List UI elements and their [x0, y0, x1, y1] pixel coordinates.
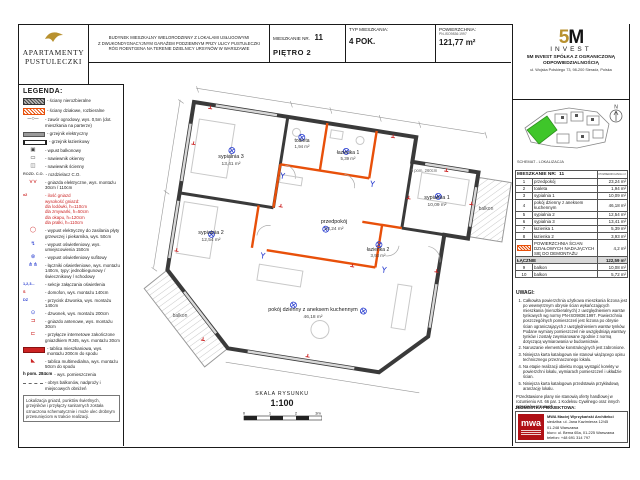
legend-item: ◣- tablica multimedialna, wys. montażu 5… — [23, 359, 120, 370]
type-value: 4 POK. — [349, 37, 432, 46]
table-row: 7łazienka 15,39 m² — [516, 225, 628, 232]
legend-item: DZ- przycisk dzwonka, wys. montażu 140cm — [23, 298, 120, 309]
room-area: 13,41 m² — [222, 161, 241, 167]
light-sections-icon: 1,2,3... — [23, 282, 43, 286]
table-row: 9balkon10,08 m² — [516, 264, 628, 271]
room-area: 10,09 m² — [428, 202, 447, 208]
legend-item: ▭- nawiewnik okienny — [23, 156, 120, 162]
window-vent-icon: ▭ — [23, 156, 43, 162]
legend-item: - ściany nierozbieralne — [23, 98, 120, 105]
legend-item: ◫- nawiewnik ścienny — [23, 164, 120, 170]
scale-bar: 0 1 2 3m — [242, 410, 322, 424]
developer-block: 5M INVEST 5M INVEST SPÓŁKA Z OGRANICZONĄ… — [513, 24, 629, 100]
type-label: TYP MIESZKANIA: — [349, 27, 432, 32]
map-caption: SCHEMAT - LOKALIZACJA — [517, 160, 625, 164]
room-area: 5,39 m² — [341, 156, 356, 161]
ethernet-socket-icon: ⊏ — [23, 332, 43, 338]
table-row: 4pokój dzienny z aneksem kuchennym46,18 … — [516, 199, 628, 211]
design-office-title: JEDNOSTKA PROJEKTOWA: — [515, 405, 628, 410]
partition-wall-icon — [23, 108, 45, 115]
mwa-logo: mwa — [518, 414, 544, 440]
demolition-row: POWIERZCHNIA ŚCIAN DZIAŁOWYCH NADAJĄCYCH… — [516, 240, 628, 257]
apartment-type-cell: TYP MIESZKANIA: 4 POK. — [346, 25, 436, 63]
room-schedule-table: MIESZKANIE NR: 11 POWIERZCHNIA m² 1przed… — [515, 170, 628, 278]
notes-block: UWAGI: Całkowita powierzchnia użytkowa m… — [516, 290, 627, 409]
height-note: h pom. 260cm — [411, 168, 438, 173]
design-office-block: JEDNOSTKA PROJEKTOWA: mwa MWA Maciej Wyr… — [515, 405, 628, 443]
apartment-geometry — [134, 83, 512, 410]
power-outlet-icon: ⋎⋎ — [23, 180, 43, 186]
floor-plan-drawing: sypialnia 3 13,41 m² toaleta 1,94 m² łaz… — [124, 62, 512, 446]
legend-panel: LEGENDA: - ściany nierozbieralne - ścian… — [19, 84, 124, 446]
table-header-row: MIESZKANIE NR: 11 POWIERZCHNIA m² — [516, 171, 628, 179]
legend-item: ⋔⋔- łączniki oświetleniowe, wys. montażu… — [23, 263, 120, 279]
legend-item: ⊏- przyłącze internetowe zakończone gnia… — [23, 332, 120, 343]
bathroom-heater-icon — [23, 140, 47, 145]
brand-name-line2: PUSTULECZKI — [19, 57, 88, 66]
room-label: sypialnia 3 — [218, 154, 243, 160]
legend-footnote: Lokalizacja gniazd, punktów świetlnych, … — [23, 395, 120, 422]
location-map: N — [517, 102, 625, 154]
table-row: 2toaleta1,94 m² — [516, 185, 628, 192]
outline-dash-icon — [23, 383, 43, 384]
table-row: 8łazienka 23,93 m² — [516, 233, 628, 240]
apartment-number-cell: MIESZKANIE NR. 11 PIĘTRO 2 — [270, 25, 346, 63]
legend-item: ROZD. C.O.- rozdzielacz C.O. — [23, 172, 120, 177]
description-line: RÓG ROENTGENA NA TERENIE DZIELNICY URSYN… — [89, 46, 269, 52]
notes-list: Całkowita powierzchnia użytkowa mieszkan… — [516, 298, 627, 391]
legend-item: - tablica mieszkaniowa, wys. montażu 200… — [23, 346, 120, 357]
note-item: Niniejsza karta katalogowa nie stanowi w… — [523, 352, 627, 362]
floor-plan-sheet: { "header": { "brand_line1": "APARTAMENT… — [0, 0, 640, 480]
ceiling-light-icon: ⊗ — [23, 255, 43, 261]
room-label: balkon — [173, 313, 188, 319]
doorbell-icon: ⊙ — [23, 311, 43, 317]
apartment-panel-icon — [23, 347, 45, 353]
legend-item: x2- ilość gniazd wysokość gniazd: dla lo… — [23, 193, 120, 225]
table-row: 3sypialnia 110,09 m² — [516, 192, 628, 199]
title-block-column: 5M INVEST 5M INVEST SPÓŁKA Z OGRANICZONĄ… — [512, 24, 629, 446]
floor-number: 2 — [307, 48, 312, 57]
room-label: przedpokój — [321, 219, 347, 225]
svg-text:3m: 3m — [315, 411, 321, 416]
antenna-socket-icon: ⊐ — [23, 319, 43, 325]
room-area: 46,18 m² — [304, 314, 323, 320]
total-row: ŁĄCZNIE 122,59 m² — [516, 257, 628, 264]
legend-item: 1,2,3...- sekcje załączania oświetlenia — [23, 282, 120, 287]
legend-item: h pom. 284cm- wys. pomieszczenia — [23, 372, 120, 377]
light-outlet-icon: ↯ — [23, 242, 43, 248]
room-area: 23,24 m² — [325, 226, 344, 232]
legend-item: ⋎⋎- gniazda elektryczne, wys. montażu 30… — [23, 180, 120, 191]
electric-heater-icon — [23, 132, 45, 137]
room-label: sypialnia 2 — [198, 230, 223, 236]
legend-item: - grzejnik łazienkowy — [23, 139, 120, 145]
table-row: 6sypialnia 313,41 m² — [516, 218, 628, 225]
solid-wall-icon — [23, 98, 45, 105]
design-office-details: MWA Maciej Wyrzykański Architekci siedzi… — [547, 414, 614, 440]
cooktop-outlet-icon: ◯ — [23, 228, 43, 234]
north-arrow-icon: N — [610, 105, 622, 123]
legend-title: LEGENDA: — [23, 88, 120, 95]
outlet-count-icon: x2 — [23, 193, 43, 197]
table-row: 1przedpokój23,24 m² — [516, 178, 628, 185]
svg-text:1: 1 — [269, 411, 272, 416]
note-item: Naruszanie elementów konstrukcyjnych jes… — [523, 345, 627, 350]
scale-value: 1:100 — [236, 398, 328, 408]
kestrel-bird-icon — [43, 29, 65, 43]
office-line: siedziba: ul. Jana Kazimierza 12/45 — [547, 419, 614, 424]
brand-logo-cell: APARTAMENTY PUSTULECZKI — [19, 25, 89, 85]
developer-logo-sub: INVEST — [513, 46, 629, 53]
legend-item: ▣- wpust balkonowy — [23, 148, 120, 154]
room-label: balkon — [479, 206, 494, 212]
legend-item: - grzejnik elektryczny — [23, 131, 120, 137]
apartment-number: 11 — [314, 33, 322, 42]
table-row: 5sypialnia 212,54 m² — [516, 211, 628, 218]
legend-item: ⊐- gniazdo antenowe, wys. montażu 30cm — [23, 319, 120, 330]
area-value: 121,77 m² — [439, 38, 508, 47]
developer-address: ul. Wojska Polskiego 73, 98-200 Sieradz,… — [513, 68, 629, 72]
floor-label: PIĘTRO — [273, 48, 304, 57]
legend-item: S- domofon, wys. montażu 140cm — [23, 290, 120, 295]
svg-text:0: 0 — [243, 411, 246, 416]
room-area: 1,94 m² — [295, 144, 310, 149]
table-row: 10balkon5,72 m² — [516, 271, 628, 278]
mwa-logo-bars — [521, 430, 541, 436]
apartment-label: MIESZKANIE NR. — [273, 36, 310, 41]
office-phone: telefon: +48 691 314 797 — [547, 435, 614, 440]
wall-vent-icon: ◫ — [23, 164, 43, 170]
demolition-hatch-icon — [517, 245, 531, 251]
multimedia-panel-icon: ◣ — [23, 359, 43, 365]
brand-name-line1: APARTAMENTY — [19, 48, 88, 57]
room-height-icon: h pom. 284cm — [23, 372, 52, 377]
scale-block: SKALA RYSUNKU 1:100 0 1 2 3m — [236, 391, 328, 429]
apartment-area-cell: POWIERZCHNIA: PN-ISO9836:1997 121,77 m² — [436, 25, 511, 63]
svg-text:N: N — [614, 105, 618, 111]
room-schedule-block: MIESZKANIE NR: 11 POWIERZCHNIA m² 1przed… — [515, 170, 628, 278]
area-norm: PN-ISO9836:1997 — [439, 32, 508, 36]
scale-caption: SKALA RYSUNKU — [236, 391, 328, 397]
co-distributor-icon: ROZD. C.O. — [23, 172, 44, 176]
legend-item: ◯- wypust elektryczny do zasilania płyty… — [23, 228, 120, 239]
legend-item: - ściany działowe, rozbieralne — [23, 108, 120, 115]
legend-item: ⊗- wypust oświetleniowy sufitowy — [23, 255, 120, 261]
legend-item: ⊙- dzwonek, wys. montażu 200cm — [23, 311, 120, 317]
room-area: 12,54 m² — [202, 237, 221, 243]
notes-title: UWAGI: — [516, 290, 627, 296]
legend-item: ↯- wypust oświetleniowy, wys. umiejscowi… — [23, 242, 120, 253]
developer-logo: 5M — [513, 28, 629, 47]
legend-item: - obrys balkonów, nadproży i miejscowych… — [23, 380, 120, 391]
garden-valve-icon: ─○─ — [23, 117, 43, 123]
area-column-header: POWIERZCHNIA m² — [597, 171, 628, 179]
intercom-icon: S — [23, 290, 43, 294]
room-area: 3,93 m² — [371, 253, 386, 258]
svg-text:2: 2 — [295, 411, 298, 416]
room-label: sypialnia 1 — [424, 195, 449, 201]
light-switch-icon: ⋔⋔ — [23, 263, 43, 269]
note-item: Całkowita powierzchnia użytkowa mieszkan… — [523, 298, 627, 344]
location-map-block: N SCHEMAT - LOKALIZACJA — [513, 100, 629, 170]
note-item: Niniejsza karta katalogowa przedstawia p… — [523, 381, 627, 391]
building-description: BUDYNEK MIESZKALNY WIELORODZINNY Z LOKAL… — [89, 25, 270, 63]
room-label: pokój dzienny z aneksem kuchennym — [268, 307, 358, 313]
note-item: Na etapie realizacji obiektu mogą wystąp… — [523, 364, 627, 379]
developer-name-line2: ODPOWIEDZIALNOŚCIĄ — [513, 61, 629, 67]
legend-item: ─○─- zawór ogrodowy, wys. 0,5m (dot. mie… — [23, 117, 120, 128]
balcony-drain-icon: ▣ — [23, 148, 43, 154]
doorbell-button-icon: DZ — [23, 298, 43, 302]
design-office-box: mwa MWA Maciej Wyrzykański Architekci si… — [515, 411, 628, 443]
